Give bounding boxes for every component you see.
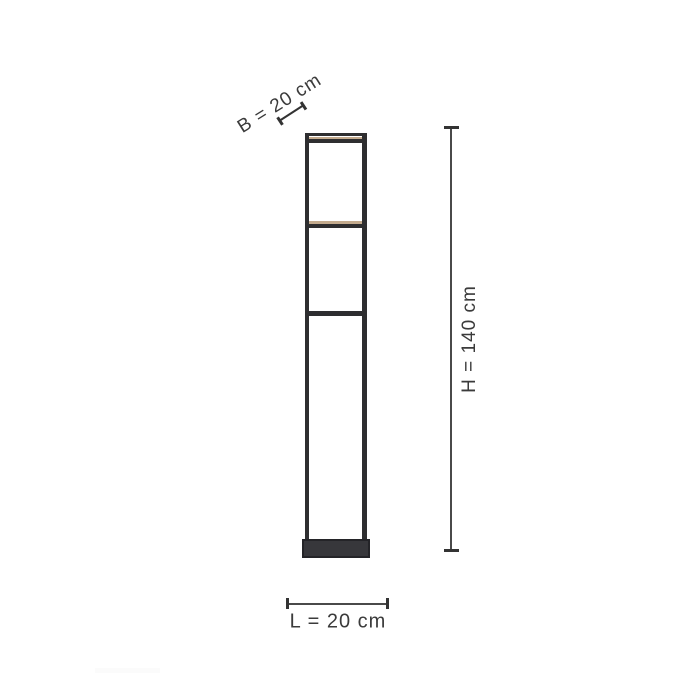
lamp-cross-bar [308,311,363,316]
lamp-lower-light-bar [308,221,363,228]
led-strip-lower [309,221,362,224]
length-dimension-right-tick [386,598,389,609]
product-dimension-diagram: H = 140 cm L = 20 cm B = 20 cm [0,0,676,676]
lamp-upper-light-bar [308,137,363,143]
length-dimension-line [288,603,388,605]
height-dimension-line [450,128,452,551]
height-dimension-bottom-tick [444,549,459,552]
length-dimension-label: L = 20 cm [290,611,387,634]
led-strip-upper [309,137,362,139]
width-dimension-label: B = 20 cm [234,69,326,138]
lamp-base [302,539,370,558]
lamp-left-post [305,133,309,556]
length-dimension-left-tick [286,598,289,609]
bottom-edge-artifact [95,668,160,673]
lamp-top-bar [305,133,367,136]
height-dimension-label: H = 140 cm [459,285,481,393]
lamp-right-post [362,133,367,558]
height-dimension-top-tick [444,126,459,129]
